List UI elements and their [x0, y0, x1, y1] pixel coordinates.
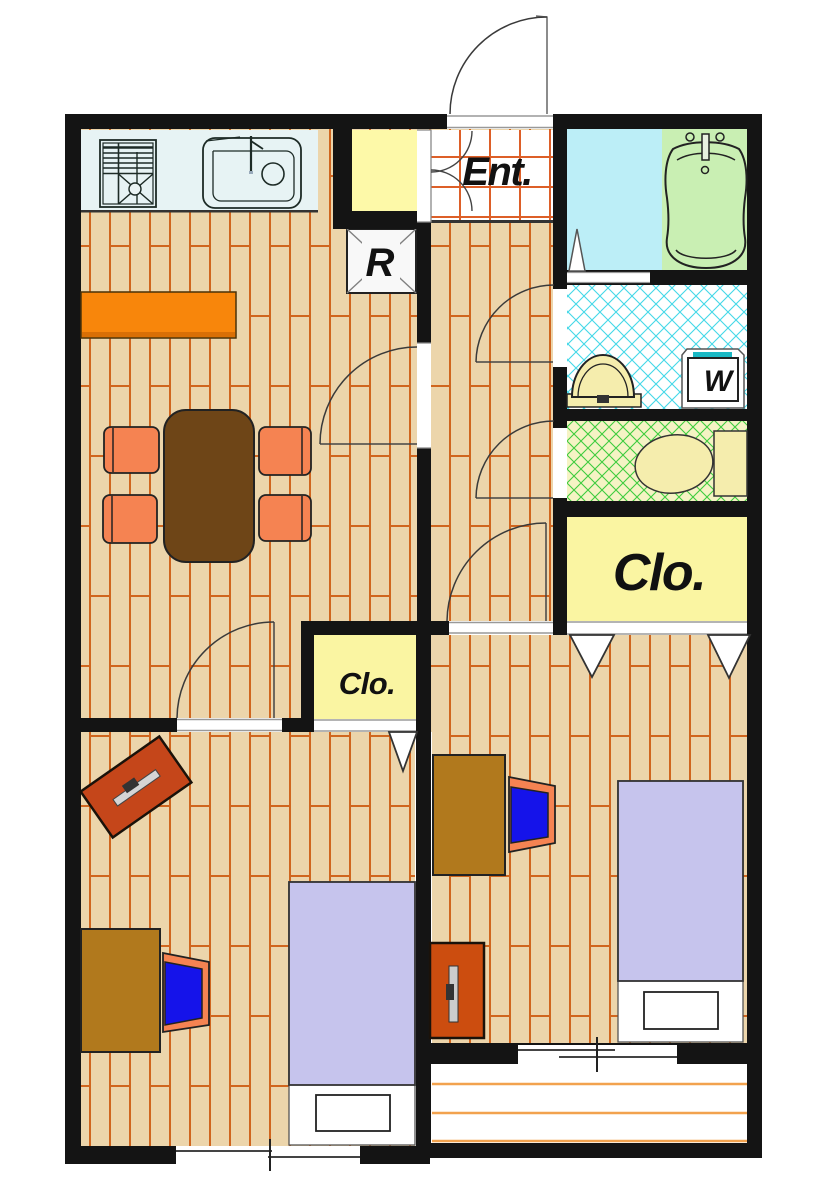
svg-text:Clo.: Clo. — [339, 666, 396, 701]
svg-text:Clo.: Clo. — [613, 544, 705, 602]
svg-text:W: W — [704, 365, 735, 398]
svg-text:R: R — [366, 241, 395, 285]
svg-text:Ent.: Ent. — [462, 150, 532, 194]
